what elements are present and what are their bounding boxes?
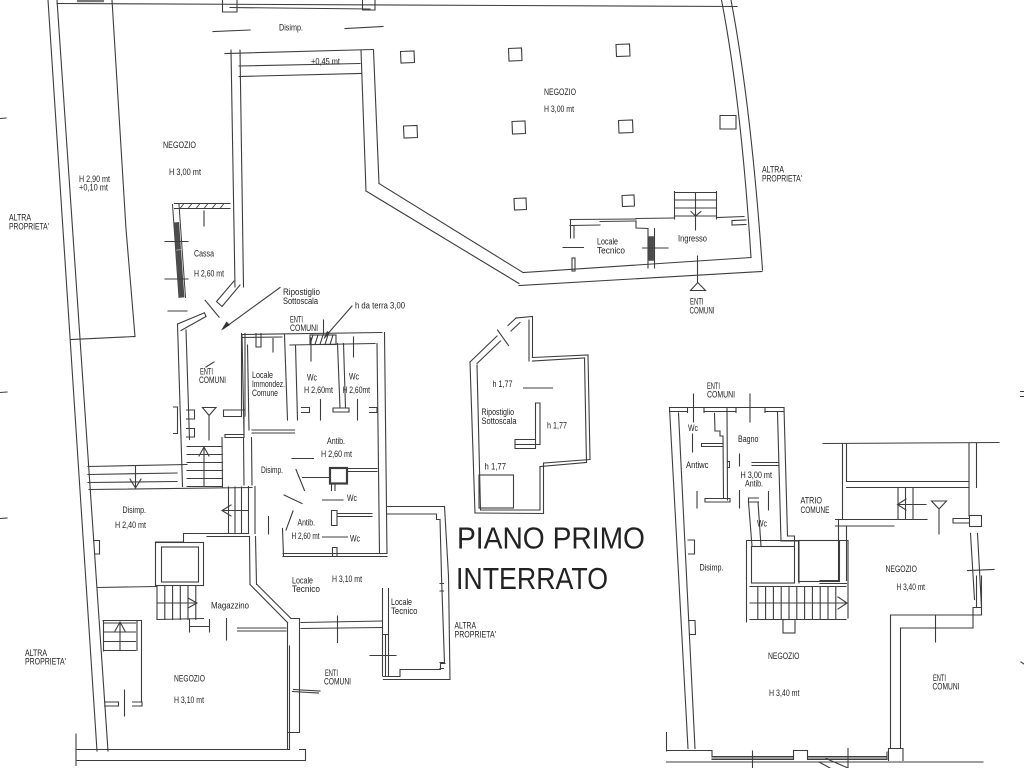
svg-text:h 1,77: h 1,77 xyxy=(485,462,507,472)
svg-text:H 2,40 mt: H 2,40 mt xyxy=(115,520,146,530)
svg-text:Sottoscala: Sottoscala xyxy=(482,416,517,426)
svg-text:Antib.: Antib. xyxy=(298,518,316,528)
svg-text:Cassa: Cassa xyxy=(194,249,214,259)
svg-text:Wc: Wc xyxy=(688,423,698,433)
svg-text:H 2,60 mt: H 2,60 mt xyxy=(321,449,352,459)
svg-text:H 2,60 mt: H 2,60 mt xyxy=(292,531,320,541)
svg-text:COMUNI: COMUNI xyxy=(707,390,735,400)
svg-text:H 3,00 mt: H 3,00 mt xyxy=(169,167,201,177)
svg-text:Disimp.: Disimp. xyxy=(700,563,724,573)
svg-text:Antiwc: Antiwc xyxy=(686,460,709,470)
svg-text:+0,45 mt: +0,45 mt xyxy=(311,57,340,67)
svg-text:Wc: Wc xyxy=(349,372,359,382)
svg-text:Tecnico: Tecnico xyxy=(391,606,418,616)
svg-text:Sottoscala: Sottoscala xyxy=(283,296,318,306)
svg-text:H 3,40 mt: H 3,40 mt xyxy=(769,688,800,698)
svg-text:COMUNI: COMUNI xyxy=(324,677,351,687)
svg-text:COMUNI: COMUNI xyxy=(199,375,226,385)
svg-text:h 1,77: h 1,77 xyxy=(493,379,513,389)
svg-text:h da terra 3,00: h da terra 3,00 xyxy=(355,301,405,311)
svg-text:PROPRIETA': PROPRIETA' xyxy=(25,657,66,667)
svg-text:H 3,10 mt: H 3,10 mt xyxy=(332,574,362,584)
svg-text:H 2,60mt: H 2,60mt xyxy=(304,385,333,395)
svg-text:Magazzino: Magazzino xyxy=(211,601,249,611)
svg-text:Tecnico: Tecnico xyxy=(597,246,625,256)
svg-text:ATRIO: ATRIO xyxy=(801,496,823,506)
svg-text:NEGOZIO: NEGOZIO xyxy=(174,674,205,684)
svg-text:Tecnico: Tecnico xyxy=(292,584,320,594)
svg-text:+0,10 mt: +0,10 mt xyxy=(79,183,108,193)
svg-text:PROPRIETA': PROPRIETA' xyxy=(455,630,497,640)
svg-text:Disimp.: Disimp. xyxy=(123,505,147,515)
svg-text:Wc: Wc xyxy=(347,493,357,503)
svg-text:H 3,40 mt: H 3,40 mt xyxy=(897,582,926,592)
svg-text:Wc: Wc xyxy=(757,519,767,529)
svg-text:Antib.: Antib. xyxy=(745,479,763,489)
svg-text:Wc: Wc xyxy=(350,534,360,544)
svg-text:NEGOZIO: NEGOZIO xyxy=(163,140,196,150)
svg-text:PROPRIETA': PROPRIETA' xyxy=(762,174,802,184)
svg-text:Wc: Wc xyxy=(307,373,317,383)
svg-text:h 1,77: h 1,77 xyxy=(547,421,567,431)
svg-text:COMUNI: COMUNI xyxy=(690,306,715,316)
svg-text:Comune: Comune xyxy=(252,388,278,398)
svg-text:INTERRATO: INTERRATO xyxy=(456,561,608,596)
svg-text:COMUNI: COMUNI xyxy=(933,682,960,692)
svg-text:PIANO PRIMO: PIANO PRIMO xyxy=(457,521,645,556)
svg-text:Bagno: Bagno xyxy=(738,434,759,444)
svg-text:H 3,00 mt: H 3,00 mt xyxy=(544,104,574,114)
svg-text:PROPRIETA': PROPRIETA' xyxy=(9,222,49,232)
svg-text:NEGOZIO: NEGOZIO xyxy=(544,87,576,97)
svg-text:NEGOZIO: NEGOZIO xyxy=(886,564,918,574)
svg-text:NEGOZIO: NEGOZIO xyxy=(768,651,800,661)
svg-text:COMUNE: COMUNE xyxy=(801,505,830,515)
svg-text:Disimp.: Disimp. xyxy=(279,23,303,33)
svg-text:H 2,60 mt: H 2,60 mt xyxy=(194,269,224,279)
svg-text:Disimp.: Disimp. xyxy=(261,465,283,475)
svg-text:H 3,10 mt: H 3,10 mt xyxy=(174,695,204,705)
svg-text:COMUNI: COMUNI xyxy=(290,323,318,333)
svg-text:Ingresso: Ingresso xyxy=(678,234,707,244)
svg-text:Antib.: Antib. xyxy=(327,436,345,446)
svg-text:H 2,60mt: H 2,60mt xyxy=(343,385,371,395)
